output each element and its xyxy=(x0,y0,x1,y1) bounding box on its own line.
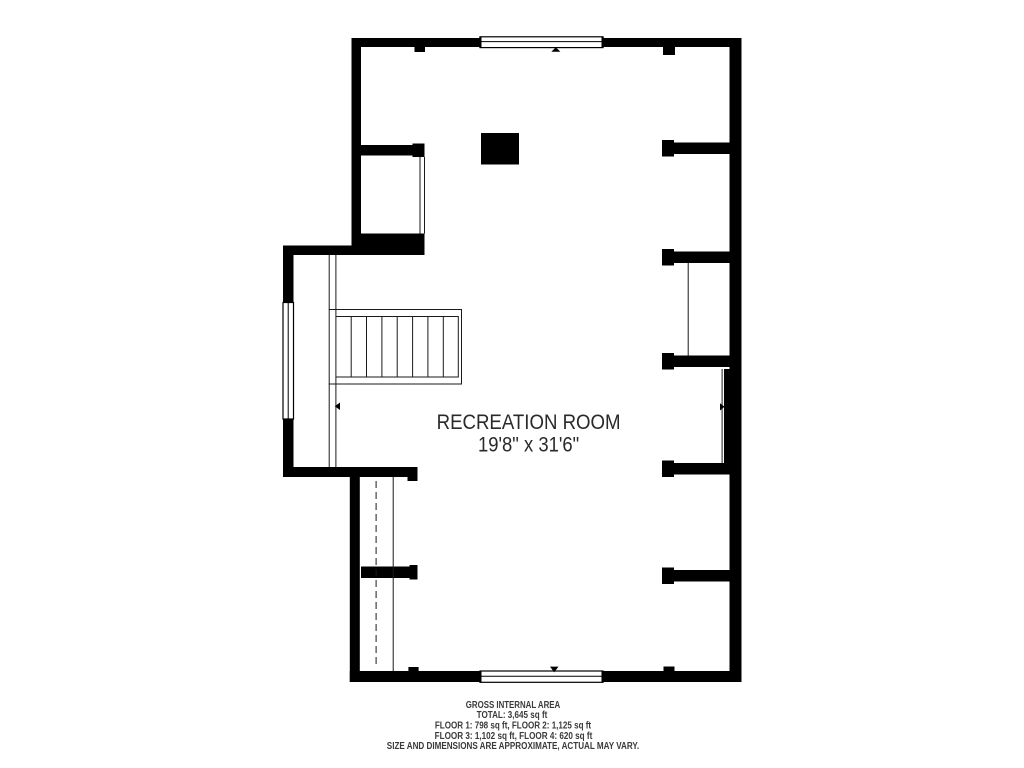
svg-text:SIZE AND DIMENSIONS ARE APPROX: SIZE AND DIMENSIONS ARE APPROXIMATE, ACT… xyxy=(387,740,639,751)
svg-text:FLOOR 1: 798 sq ft, FLOOR 2: 1: FLOOR 1: 798 sq ft, FLOOR 2: 1,125 sq ft xyxy=(435,720,591,731)
svg-text:19'8" x 31'6": 19'8" x 31'6" xyxy=(478,434,579,457)
svg-text:RECREATION ROOM: RECREATION ROOM xyxy=(437,411,621,434)
